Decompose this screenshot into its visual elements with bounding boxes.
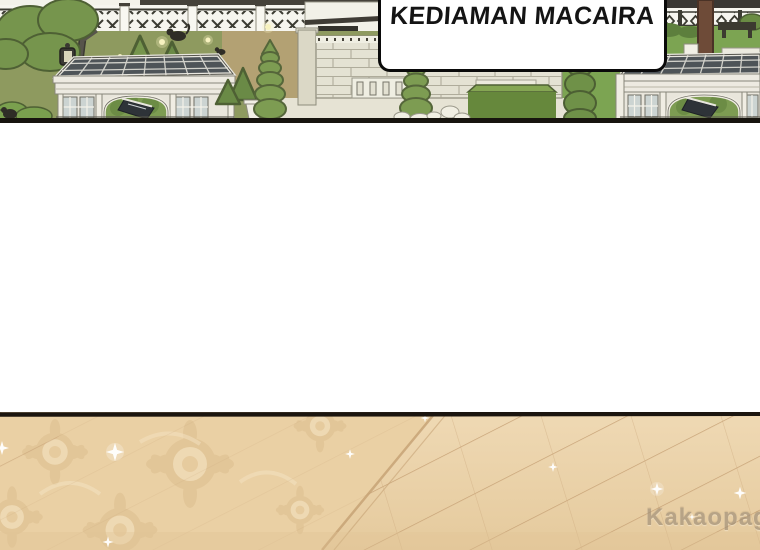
caption-text: KEDIAMAN MACAIRA — [389, 2, 656, 31]
pine-tree-trunk — [698, 0, 713, 58]
watermark: Kakaopage .co.id — [646, 506, 760, 533]
floor-border — [0, 414, 760, 415]
webtoon-page: KEDIAMAN MACAIRA — [0, 0, 760, 550]
watermark-text: Kakaopage — [646, 506, 760, 530]
scene-border — [0, 118, 760, 123]
caption-box: KEDIAMAN MACAIRA — [378, 0, 667, 72]
glass-pavilion-left — [53, 55, 235, 121]
